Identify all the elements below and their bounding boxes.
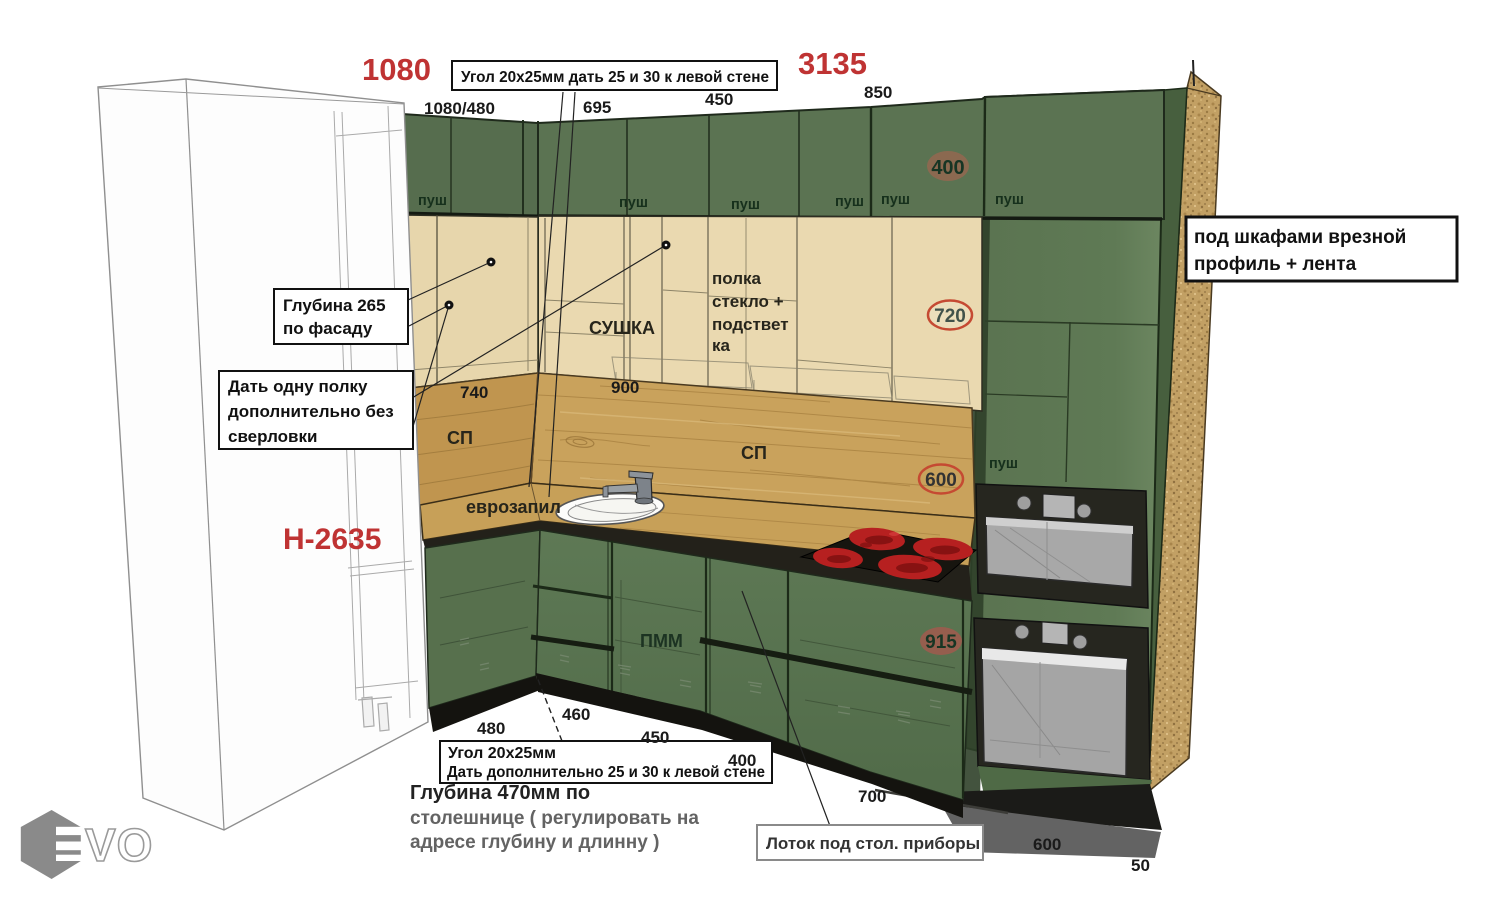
svg-text:50: 50	[1131, 856, 1150, 875]
svg-text:Дать дополнительно 25 и 30 к л: Дать дополнительно 25 и 30 к левой стене	[447, 764, 765, 781]
svg-text:ПММ: ПММ	[640, 631, 683, 651]
svg-text:подствет: подствет	[712, 315, 789, 334]
svg-text:915: 915	[925, 632, 957, 653]
svg-text:столешнице ( регулировать на: столешнице ( регулировать на	[410, 808, 699, 829]
svg-text:пуш: пуш	[731, 197, 760, 213]
svg-text:720: 720	[934, 306, 966, 327]
svg-text:450: 450	[641, 728, 669, 747]
svg-text:адресе глубину и длинну ): адресе глубину и длинну )	[410, 832, 659, 853]
svg-text:600: 600	[1033, 835, 1061, 854]
svg-text:695: 695	[583, 98, 611, 117]
svg-text:профиль + лента: профиль + лента	[1194, 254, 1357, 275]
svg-text:1080: 1080	[362, 52, 431, 87]
svg-text:пуш: пуш	[835, 194, 864, 210]
svg-text:460: 460	[562, 705, 590, 724]
svg-text:сверловки: сверловки	[228, 427, 317, 446]
svg-text:ка: ка	[712, 336, 731, 355]
svg-text:700: 700	[858, 787, 886, 806]
svg-text:пуш: пуш	[989, 456, 1018, 472]
svg-text:850: 850	[864, 83, 892, 102]
svg-text:Угол 20х25мм дать 25 и 30 к л: Угол 20х25мм дать 25 и 30 к левой стене	[461, 69, 769, 86]
svg-text:Глубина 470мм по: Глубина 470мм по	[410, 782, 590, 804]
svg-text:пуш: пуш	[881, 192, 910, 208]
svg-text:3135: 3135	[798, 46, 867, 81]
svg-text:дополнительно без: дополнительно без	[228, 402, 394, 421]
svg-text:Глубина 265: Глубина 265	[283, 296, 386, 315]
svg-text:Лоток под стол. приборы: Лоток под стол. приборы	[766, 834, 980, 853]
svg-text:740: 740	[460, 383, 488, 402]
svg-text:пуш: пуш	[995, 192, 1024, 208]
svg-text:H-2635: H-2635	[283, 523, 381, 556]
svg-text:стекло +: стекло +	[712, 292, 784, 311]
svg-text:СП: СП	[741, 443, 767, 463]
svg-text:900: 900	[611, 378, 639, 397]
svg-text:Угол 20х25мм: Угол 20х25мм	[448, 745, 556, 762]
svg-text:400: 400	[931, 157, 964, 179]
svg-text:полка: полка	[712, 269, 762, 288]
svg-text:1080/480: 1080/480	[424, 99, 495, 118]
svg-text:по фасаду: по фасаду	[283, 319, 373, 338]
svg-text:480: 480	[477, 719, 505, 738]
svg-text:450: 450	[705, 90, 733, 109]
svg-text:Дать одну полку: Дать одну полку	[228, 377, 368, 396]
svg-text:600: 600	[925, 470, 957, 491]
svg-text:VO: VO	[85, 819, 153, 871]
svg-text:пуш: пуш	[418, 193, 447, 209]
svg-text:СУШКА: СУШКА	[589, 318, 655, 338]
svg-text:еврозапил: еврозапил	[466, 497, 561, 517]
svg-text:400: 400	[728, 751, 756, 770]
svg-text:СП: СП	[447, 428, 473, 448]
svg-text:пуш: пуш	[619, 195, 648, 211]
svg-text:под шкафами врезной: под шкафами врезной	[1194, 227, 1406, 248]
